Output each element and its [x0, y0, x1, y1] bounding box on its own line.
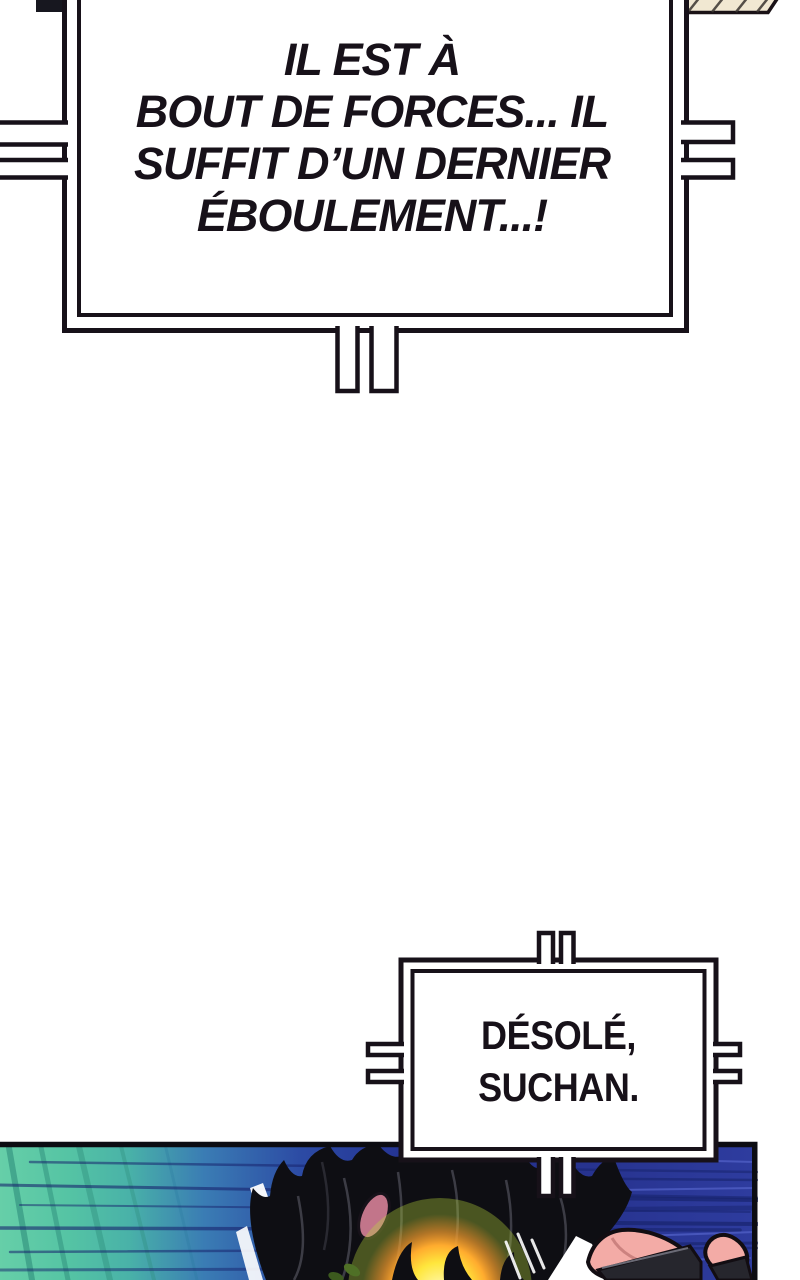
bubble2-line-1: DÉSOLÉ, — [418, 1010, 700, 1062]
comic-page: IL EST À BOUT DE FORCES... IL SUFFIT D’U… — [0, 0, 800, 1280]
bubble1-line-1: IL EST À — [42, 34, 702, 86]
action-panel — [0, 1142, 757, 1280]
bubble1-connector-bottom — [338, 326, 397, 391]
bubble2-line-2: SUCHAN. — [418, 1062, 700, 1114]
bubble1-line-3: SUFFIT D’UN DERNIER — [42, 138, 702, 190]
bubble1-line-2: BOUT DE FORCES... IL — [42, 86, 702, 138]
top-right-beam-fragment — [681, 0, 779, 13]
bubble1-text: IL EST À BOUT DE FORCES... IL SUFFIT D’U… — [42, 34, 702, 242]
bubble2-text: DÉSOLÉ, SUCHAN. — [418, 1010, 700, 1114]
bubble1-line-4: ÉBOULEMENT...! — [42, 190, 702, 242]
